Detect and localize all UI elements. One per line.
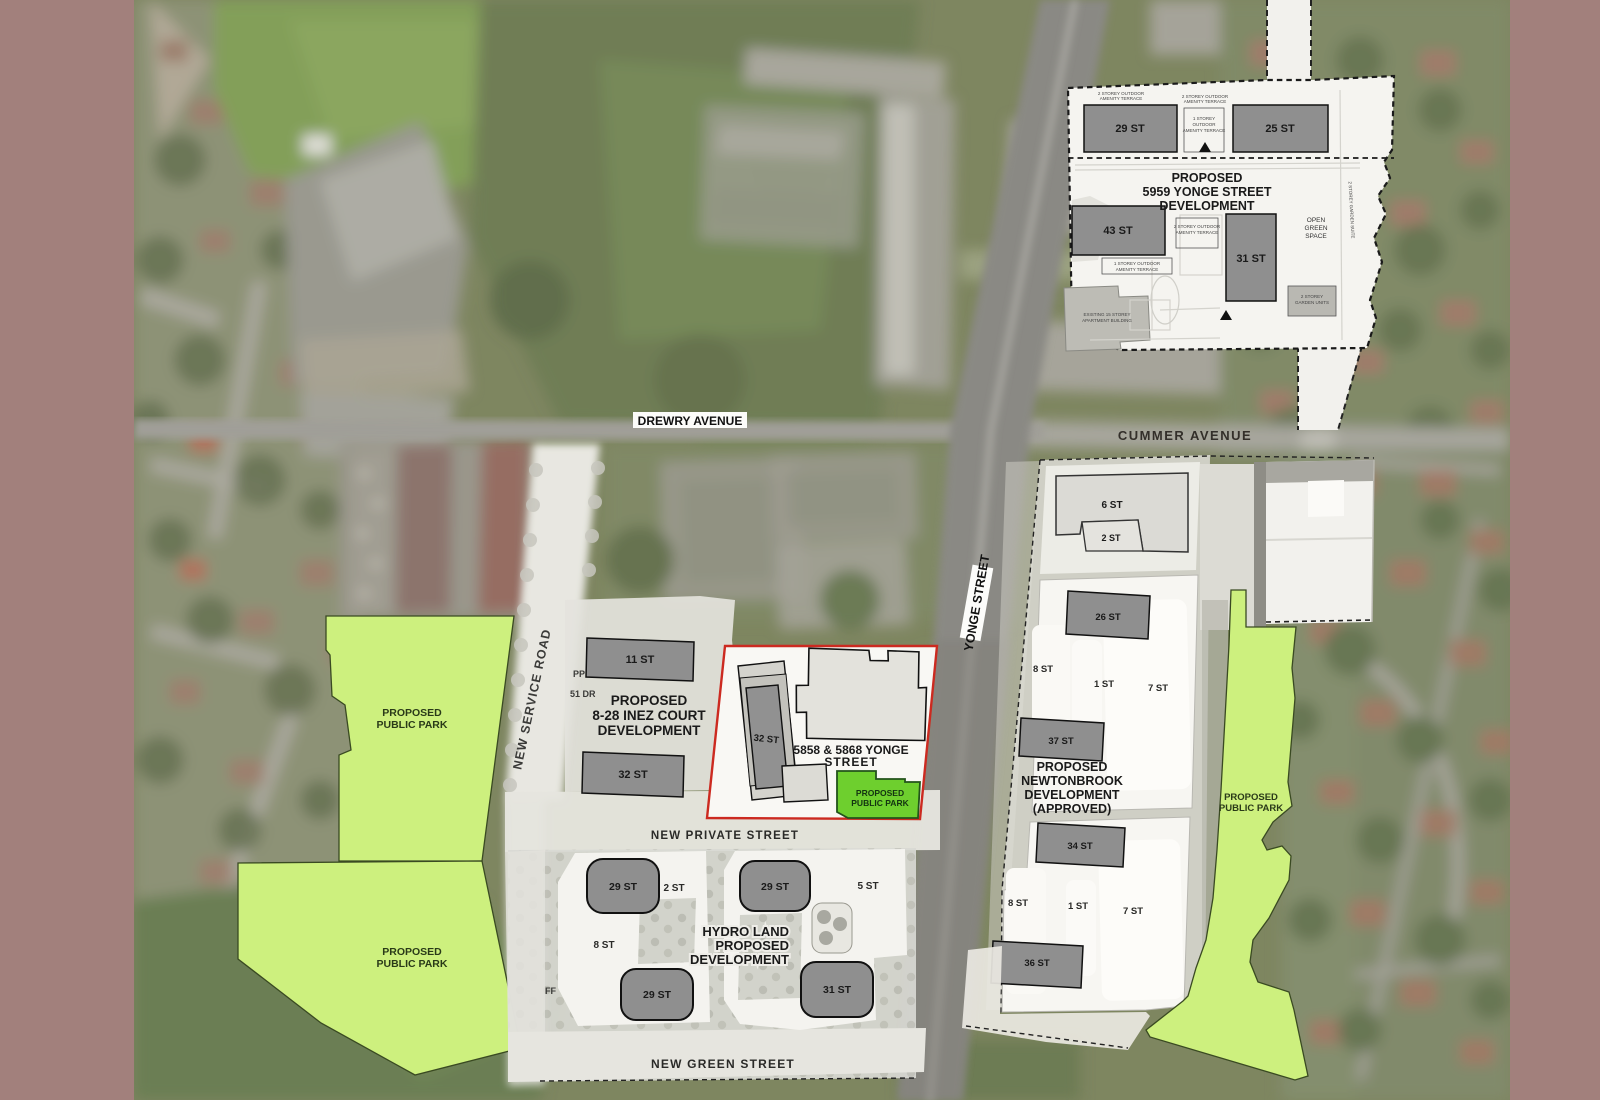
svg-text:DEVELOPMENT: DEVELOPMENT xyxy=(690,952,789,967)
svg-text:25 ST: 25 ST xyxy=(1265,123,1295,135)
svg-text:26 ST: 26 ST xyxy=(1095,612,1121,623)
svg-text:1 ST: 1 ST xyxy=(1094,679,1114,690)
svg-text:37 ST: 37 ST xyxy=(1048,736,1074,747)
svg-text:5959 YONGE STREET: 5959 YONGE STREET xyxy=(1143,185,1272,199)
svg-text:PUBLIC PARK: PUBLIC PARK xyxy=(1219,803,1283,814)
svg-text:2 STOREY OUTDOOR: 2 STOREY OUTDOOR xyxy=(1174,224,1221,229)
svg-text:1 STOREY: 1 STOREY xyxy=(1193,116,1215,121)
svg-text:6 ST: 6 ST xyxy=(1101,500,1122,511)
svg-text:PROPOSED: PROPOSED xyxy=(1224,792,1278,803)
svg-text:(APPROVED): (APPROVED) xyxy=(1033,802,1111,816)
svg-text:NEW GREEN STREET: NEW GREEN STREET xyxy=(651,1057,795,1071)
svg-text:PROPOSED: PROPOSED xyxy=(715,938,789,953)
svg-text:PROPOSED: PROPOSED xyxy=(856,788,904,798)
svg-text:PUBLIC PARK: PUBLIC PARK xyxy=(377,958,448,970)
svg-text:EXISTING 15 STOREY: EXISTING 15 STOREY xyxy=(1084,312,1131,317)
svg-text:36 ST: 36 ST xyxy=(1024,958,1050,969)
svg-text:STREET: STREET xyxy=(824,755,877,769)
svg-text:43 ST: 43 ST xyxy=(1103,225,1133,237)
svg-text:29 ST: 29 ST xyxy=(643,989,672,1001)
svg-text:PUBLIC PARK: PUBLIC PARK xyxy=(377,719,448,731)
svg-text:NEWTONBROOK: NEWTONBROOK xyxy=(1021,774,1123,788)
svg-text:31 ST: 31 ST xyxy=(823,984,852,996)
svg-text:DEVELOPMENT: DEVELOPMENT xyxy=(598,723,702,738)
svg-text:2 STOREY: 2 STOREY xyxy=(1301,294,1323,299)
svg-text:DREWRY AVENUE: DREWRY AVENUE xyxy=(638,414,743,428)
svg-text:FF: FF xyxy=(545,986,556,996)
svg-text:29 ST: 29 ST xyxy=(609,881,638,893)
svg-text:11 ST: 11 ST xyxy=(626,654,655,666)
svg-text:AMENITY TERRACE: AMENITY TERRACE xyxy=(1116,267,1159,272)
svg-text:PUBLIC PARK: PUBLIC PARK xyxy=(851,798,909,808)
svg-text:7 ST: 7 ST xyxy=(1123,906,1143,917)
svg-text:DEVELOPMENT: DEVELOPMENT xyxy=(1159,199,1255,213)
svg-text:8-28 INEZ COURT: 8-28 INEZ COURT xyxy=(592,708,706,723)
svg-text:2 ST: 2 ST xyxy=(1101,533,1121,543)
svg-text:7 ST: 7 ST xyxy=(1148,683,1168,694)
svg-text:1 STOREY OUTDOOR: 1 STOREY OUTDOOR xyxy=(1114,261,1161,266)
svg-text:APARTMENT BUILDING: APARTMENT BUILDING xyxy=(1082,318,1132,323)
svg-text:AMENITY TERRACE: AMENITY TERRACE xyxy=(1184,99,1227,104)
svg-text:PROPOSED: PROPOSED xyxy=(1172,171,1243,185)
svg-text:2 ST: 2 ST xyxy=(663,883,684,894)
svg-text:OPEN: OPEN xyxy=(1307,217,1326,224)
svg-text:HYDRO LAND: HYDRO LAND xyxy=(702,924,789,939)
svg-text:AMENITY TERRACE: AMENITY TERRACE xyxy=(1183,128,1226,133)
svg-text:29 ST: 29 ST xyxy=(1115,123,1145,135)
svg-text:1 ST: 1 ST xyxy=(1068,901,1088,912)
svg-text:34 ST: 34 ST xyxy=(1067,841,1093,852)
svg-text:PP: PP xyxy=(573,669,585,679)
svg-text:PROPOSED: PROPOSED xyxy=(382,946,442,958)
svg-text:8 ST: 8 ST xyxy=(1008,898,1028,909)
svg-text:PROPOSED: PROPOSED xyxy=(382,707,442,719)
svg-text:PROPOSED: PROPOSED xyxy=(611,693,688,708)
svg-text:AMENITY TERRACE: AMENITY TERRACE xyxy=(1176,230,1219,235)
svg-text:SPACE: SPACE xyxy=(1305,233,1327,240)
svg-text:CUMMER AVENUE: CUMMER AVENUE xyxy=(1118,428,1252,443)
svg-text:OUTDOOR: OUTDOOR xyxy=(1193,122,1217,127)
svg-text:PROPOSED: PROPOSED xyxy=(1037,760,1108,774)
svg-text:51 DR: 51 DR xyxy=(570,689,596,699)
svg-text:DEVELOPMENT: DEVELOPMENT xyxy=(1024,788,1120,802)
svg-text:5 ST: 5 ST xyxy=(857,881,878,892)
svg-text:GREEN: GREEN xyxy=(1304,225,1327,232)
svg-text:31 ST: 31 ST xyxy=(1236,253,1266,265)
svg-text:8 ST: 8 ST xyxy=(1033,664,1053,675)
svg-text:GARDEN UNITS: GARDEN UNITS xyxy=(1295,300,1329,305)
svg-text:8 ST: 8 ST xyxy=(593,940,614,951)
svg-text:29 ST: 29 ST xyxy=(761,881,790,893)
svg-text:32 ST: 32 ST xyxy=(618,769,648,781)
svg-text:AMENITY TERRACE: AMENITY TERRACE xyxy=(1100,96,1143,101)
svg-text:NEW PRIVATE STREET: NEW PRIVATE STREET xyxy=(651,830,799,842)
